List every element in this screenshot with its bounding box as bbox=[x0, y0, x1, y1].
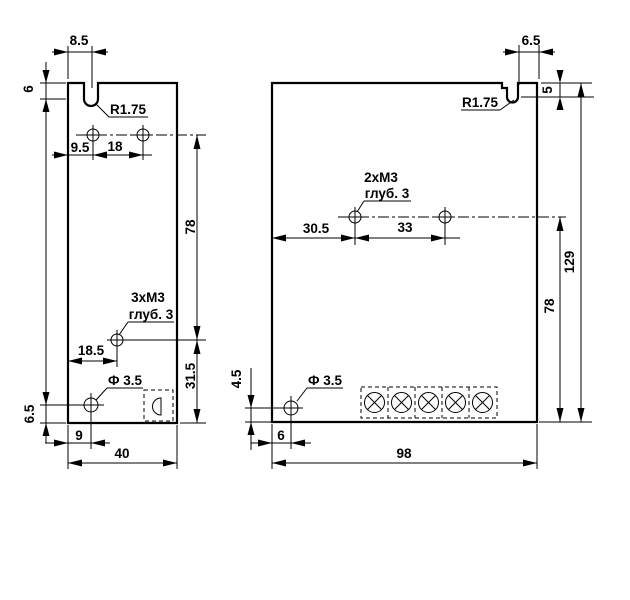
arrowhead bbox=[43, 99, 50, 112]
arrowhead bbox=[92, 49, 106, 56]
arrowhead bbox=[557, 408, 564, 422]
dim-label: 6 bbox=[277, 428, 285, 443]
dim-left-thread-to-bottom: 31.5 bbox=[180, 340, 206, 423]
arrowhead bbox=[43, 423, 50, 436]
left-mount-hole: Ф 3.5 bbox=[40, 373, 143, 449]
arrowhead bbox=[68, 460, 82, 467]
left-top-holes bbox=[76, 125, 206, 145]
dim-right-thread-positions: 30.5 33 bbox=[272, 220, 460, 245]
arrowhead bbox=[539, 49, 553, 56]
terminal-screw bbox=[446, 393, 466, 413]
diameter-label: Ф 3.5 bbox=[308, 373, 343, 388]
terminal-screw bbox=[473, 393, 493, 413]
arrowhead bbox=[341, 235, 355, 242]
dim-right-width: 98 bbox=[272, 424, 537, 469]
dim-label: 5 bbox=[540, 86, 555, 94]
thread-callout: глуб. 3 bbox=[129, 307, 174, 322]
arrowhead bbox=[194, 340, 201, 354]
arrowhead bbox=[291, 440, 305, 447]
arrowhead bbox=[248, 422, 255, 435]
dim-right-height: 129 bbox=[539, 83, 592, 422]
diameter-label: Ф 3.5 bbox=[108, 373, 143, 388]
right-mount-hole: Ф 3.5 bbox=[245, 373, 343, 449]
left-thread-hole: 3xM3 глуб. 3 bbox=[107, 290, 174, 350]
hidden-outline bbox=[144, 390, 173, 421]
arrowhead bbox=[272, 235, 286, 242]
dim-label: 18.5 bbox=[78, 343, 105, 358]
right-panel-outline bbox=[272, 83, 537, 422]
arrowhead bbox=[129, 152, 143, 159]
dim-label: 6.5 bbox=[522, 33, 541, 48]
dim-label: 33 bbox=[397, 220, 413, 235]
arrowhead bbox=[578, 83, 585, 97]
leader-line bbox=[357, 201, 364, 212]
dim-label: 40 bbox=[114, 446, 129, 461]
arrowhead bbox=[43, 70, 50, 83]
thread-callout: 3xM3 bbox=[131, 290, 165, 305]
dim-label: 18 bbox=[107, 139, 123, 154]
left-view: 8.5 6 R1.75 bbox=[21, 33, 206, 469]
dim-label: 4.5 bbox=[229, 369, 244, 388]
radius-label: R1.75 bbox=[462, 95, 499, 110]
arrowhead bbox=[505, 49, 519, 56]
dim-label: 9 bbox=[75, 428, 83, 443]
arrowhead bbox=[163, 460, 177, 467]
arrowhead bbox=[54, 152, 68, 159]
arrowhead bbox=[194, 135, 201, 149]
dim-label: 78 bbox=[542, 298, 557, 314]
dim-right-bottom-hole-offset: 6 bbox=[251, 428, 311, 447]
arrowhead bbox=[194, 326, 201, 340]
right-view: 6.5 R1.75 5 2xM3 bbox=[229, 33, 594, 469]
dim-left-bottom-hole-height: 6.5 bbox=[22, 392, 66, 436]
arrowhead bbox=[523, 460, 537, 467]
dim-label: 6 bbox=[21, 85, 36, 93]
callout-left-slot-radius: R1.75 bbox=[96, 102, 148, 117]
arrowhead bbox=[43, 392, 50, 405]
dim-label: 129 bbox=[562, 251, 577, 274]
dim-left-width: 40 bbox=[68, 425, 177, 469]
arrowhead bbox=[258, 440, 272, 447]
arrowhead bbox=[248, 395, 255, 408]
arrowhead bbox=[194, 409, 201, 423]
dim-label: 78 bbox=[183, 219, 198, 235]
thread-callout: глуб. 3 bbox=[365, 186, 410, 201]
dim-label: 8.5 bbox=[70, 33, 89, 48]
arrowhead bbox=[272, 460, 286, 467]
arrowhead bbox=[431, 235, 445, 242]
dim-left-slot-depth: 6 bbox=[21, 62, 66, 443]
dim-left-thread-offset: 18.5 bbox=[68, 343, 117, 367]
leader-line bbox=[500, 100, 514, 110]
leader-line bbox=[297, 388, 307, 401]
half-round-detail bbox=[153, 398, 162, 415]
dim-right-row-to-bottom: 78 bbox=[542, 217, 564, 422]
terminal-screw bbox=[365, 393, 385, 413]
leader-line bbox=[119, 322, 128, 335]
dim-right-bottom-hole-height: 4.5 bbox=[229, 368, 271, 450]
arrowhead bbox=[93, 152, 107, 159]
arrowhead bbox=[578, 408, 585, 422]
drawing-canvas: 8.5 6 R1.75 bbox=[0, 0, 630, 600]
dim-label: 6.5 bbox=[22, 404, 37, 423]
arrowhead bbox=[91, 440, 105, 447]
left-panel-outline bbox=[68, 83, 177, 423]
left-hidden-detail bbox=[144, 390, 173, 421]
terminal-screw bbox=[392, 393, 412, 413]
dim-label: 30.5 bbox=[303, 221, 330, 236]
dim-left-bottom-hole-offset: 9 bbox=[45, 428, 110, 447]
dim-label: 98 bbox=[396, 446, 412, 461]
arrowhead bbox=[355, 235, 369, 242]
arrowhead bbox=[68, 358, 82, 365]
thread-callout: 2xM3 bbox=[364, 170, 398, 185]
right-thread-holes: 2xM3 глуб. 3 bbox=[338, 170, 566, 227]
terminal-block bbox=[361, 387, 497, 418]
technical-drawing: 8.5 6 R1.75 bbox=[0, 0, 630, 600]
arrowhead bbox=[54, 49, 68, 56]
terminal-screw bbox=[419, 393, 439, 413]
arrowhead bbox=[557, 217, 564, 231]
arrowhead bbox=[54, 440, 68, 447]
leader-line bbox=[96, 388, 107, 400]
dim-label: 9.5 bbox=[71, 140, 90, 155]
dim-right-slot-width: 6.5 bbox=[503, 33, 555, 85]
arrowhead bbox=[103, 358, 117, 365]
radius-label: R1.75 bbox=[110, 102, 147, 117]
arrowhead bbox=[557, 97, 564, 110]
leader-line bbox=[96, 104, 109, 117]
dim-label: 31.5 bbox=[183, 362, 198, 389]
dim-right-slot-depth: 5 bbox=[521, 70, 594, 110]
arrowhead bbox=[557, 70, 564, 83]
dim-left-slot-width: 8.5 bbox=[52, 33, 108, 88]
